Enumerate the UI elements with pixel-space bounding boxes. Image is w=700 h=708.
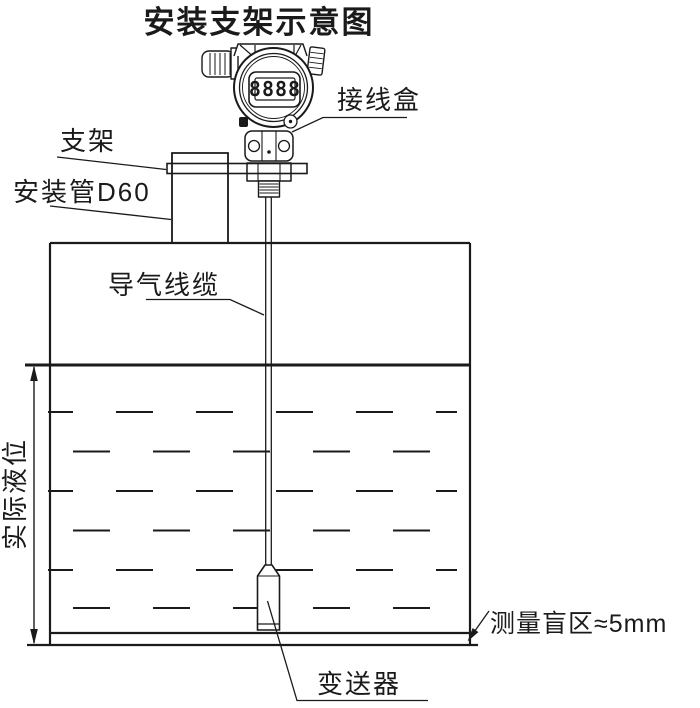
page-title: 安装支架示意图 (144, 5, 375, 40)
schematic-page: 安装支架示意图 (0, 0, 700, 708)
label-mounting-pipe: 安装管D60 (13, 177, 151, 207)
tank (25, 243, 478, 645)
leader-bracket (57, 157, 166, 170)
sensor-yoke (245, 131, 293, 161)
mounting-pipe (172, 153, 228, 243)
probe (258, 565, 280, 630)
liquid-dashes (48, 412, 457, 608)
bracket-plate (167, 164, 307, 174)
label-air-cable: 导气线缆 (108, 270, 220, 300)
threaded-nipple (259, 181, 280, 197)
leader-mounting-pipe (50, 206, 171, 220)
hex-nut (247, 163, 291, 181)
label-junction-box: 接线盒 (337, 85, 421, 115)
label-transmitter: 变送器 (317, 669, 401, 699)
arrow-up-icon (30, 366, 38, 382)
lcd-display: 8888 (249, 72, 301, 107)
label-actual-level: 实际液位 (0, 438, 30, 550)
air-cable (266, 197, 272, 566)
label-blind-zone: 测量盲区≈5mm (490, 610, 667, 638)
level-dimension-arrow (30, 366, 38, 645)
leader-junction-box (292, 118, 407, 133)
cable-gland-icon (202, 48, 238, 79)
bolt-icon (239, 117, 248, 127)
arrow-down-icon (30, 629, 38, 645)
installation-diagram: 安装支架示意图 (0, 0, 700, 708)
leader-air-cable (146, 300, 264, 316)
label-bracket: 支架 (60, 126, 116, 156)
lcd-reading: 8888 (249, 77, 301, 101)
